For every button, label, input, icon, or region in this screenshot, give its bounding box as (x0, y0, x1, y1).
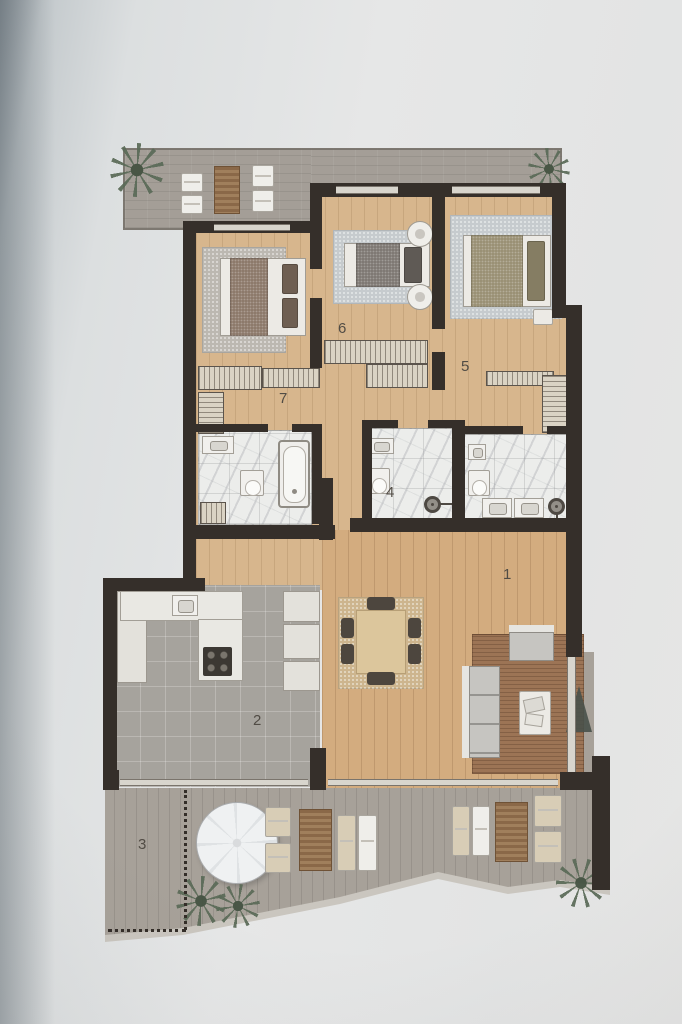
slatted-table-icon (214, 166, 240, 214)
dining-table-icon (356, 610, 406, 674)
wall (592, 756, 610, 890)
sun-lounger-icon (252, 165, 274, 187)
closet-icon (200, 502, 226, 524)
room-label-3: 3 (138, 836, 147, 853)
palm-plant-icon (110, 143, 164, 197)
wall (319, 478, 333, 540)
window-glazing (336, 186, 398, 194)
terrace-boundary-dotted-line (108, 929, 186, 932)
dining-chair-icon (408, 644, 421, 664)
pillow (282, 298, 298, 328)
armchair-back (509, 625, 554, 633)
dining-chair-icon (341, 618, 354, 638)
pouf-icon (407, 284, 433, 310)
sliding-glass-door-icon (328, 779, 558, 786)
wall (547, 426, 570, 434)
sofa-back (462, 666, 470, 758)
cooktop-hob-icon (203, 647, 232, 676)
pillow (282, 264, 298, 294)
dining-chair-icon (341, 644, 354, 664)
dining-chair-icon (367, 597, 395, 610)
shower-arm (439, 503, 453, 505)
slatted-outdoor-rug-icon (299, 809, 332, 871)
duvet (471, 235, 523, 307)
appliance-column-icon (283, 661, 320, 691)
wall (428, 420, 454, 428)
wardrobe-icon (324, 340, 428, 364)
duvet (356, 243, 400, 287)
sun-lounger-icon (358, 815, 377, 871)
washbasin-icon (202, 436, 234, 454)
double-washbasin-icon (514, 498, 544, 518)
wall (452, 420, 465, 520)
refrigerator-column-icon (283, 591, 320, 622)
floor-plan-photo: 1 2 3 4 5 6 7 (0, 0, 682, 1024)
sun-lounger-icon (452, 806, 470, 856)
bathtub-icon (278, 440, 310, 508)
sun-lounger-icon (337, 815, 356, 871)
double-washbasin-icon (482, 498, 512, 518)
upper-terrace-floor (311, 148, 562, 186)
wardrobe-icon (198, 366, 262, 390)
bidet-icon (468, 444, 486, 460)
sun-lounger-icon (252, 190, 274, 212)
window-glazing (214, 224, 290, 231)
toilet-icon (240, 470, 264, 496)
sun-lounger-icon (181, 173, 203, 192)
outdoor-chair-icon (265, 843, 291, 873)
wall (432, 183, 445, 329)
hall-floor (196, 530, 326, 590)
sliding-glass-door-icon (120, 779, 308, 786)
slatted-outdoor-rug-icon (495, 802, 528, 862)
room-label-7: 7 (279, 390, 288, 407)
wall (292, 424, 312, 432)
ottoman-icon (533, 309, 553, 325)
wall (103, 578, 117, 790)
wall (465, 426, 523, 434)
outdoor-chair-icon (265, 807, 291, 837)
pillow (527, 241, 545, 301)
terrace-boundary-dotted-line (184, 790, 187, 930)
wall (560, 772, 594, 790)
wardrobe-icon (262, 368, 320, 388)
wall (103, 578, 205, 591)
wardrobe-icon (366, 364, 428, 388)
pillow (404, 247, 422, 283)
wall (310, 298, 322, 368)
oven-column-icon (283, 624, 320, 659)
wall (196, 424, 268, 432)
wall (310, 748, 326, 790)
dining-chair-icon (367, 672, 395, 685)
wall (362, 420, 372, 520)
duvet (230, 258, 268, 336)
room-label-2: 2 (253, 712, 262, 729)
toilet-icon (468, 470, 490, 496)
room-label-6: 6 (338, 320, 347, 337)
dining-chair-icon (408, 618, 421, 638)
wall (566, 305, 582, 657)
room-label-1: 1 (503, 566, 512, 583)
window-glazing (567, 657, 576, 773)
drain (292, 489, 297, 494)
room-label-5: 5 (461, 358, 470, 375)
magazines (524, 713, 543, 727)
wall (432, 352, 445, 390)
wall (350, 518, 582, 532)
pouf-icon (407, 221, 433, 247)
sun-lounger-icon (472, 806, 490, 856)
outdoor-chair-icon (534, 795, 562, 827)
kitchen-sink-icon (172, 595, 198, 616)
wall (310, 183, 322, 269)
wardrobe-icon (542, 375, 568, 433)
outdoor-chair-icon (534, 831, 562, 863)
wall (183, 525, 335, 539)
wall (552, 195, 566, 311)
room-label-4: 4 (386, 484, 395, 501)
wall (362, 420, 398, 428)
sun-lounger-icon (181, 195, 203, 214)
wall (103, 770, 119, 790)
window-glazing (452, 186, 540, 194)
